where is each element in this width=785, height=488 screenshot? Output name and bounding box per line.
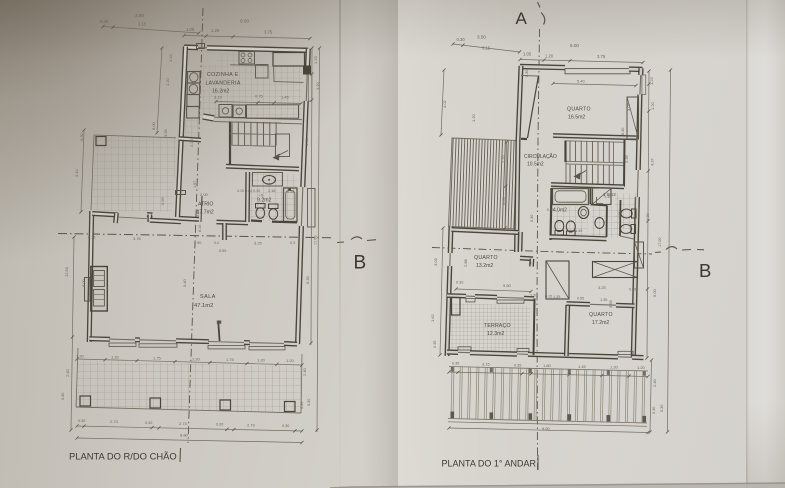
svg-text:0.30: 0.30 — [61, 393, 65, 400]
svg-text:0.30: 0.30 — [79, 132, 84, 141]
svg-text:2.73: 2.73 — [110, 419, 119, 424]
svg-text:3.25: 3.25 — [598, 285, 607, 290]
svg-text:0.35: 0.35 — [433, 341, 437, 348]
svg-text:1.20: 1.20 — [165, 77, 170, 86]
svg-text:0.30: 0.30 — [307, 399, 311, 406]
svg-text:1.20: 1.20 — [610, 365, 619, 370]
svg-text:1.45: 1.45 — [281, 95, 290, 100]
svg-text:17.00: 17.00 — [314, 235, 318, 245]
svg-text:0.30: 0.30 — [88, 236, 95, 240]
svg-text:0.15 0.84 0.15: 0.15 0.84 0.15 — [237, 189, 260, 193]
svg-text:1.90: 1.90 — [194, 241, 201, 245]
svg-text:1.23: 1.23 — [649, 76, 654, 85]
svg-text:1.35: 1.35 — [618, 212, 622, 219]
svg-text:17.00: 17.00 — [658, 237, 662, 247]
svg-text:3.75: 3.75 — [597, 54, 606, 59]
svg-text:3.75: 3.75 — [264, 30, 273, 35]
svg-text:0.30: 0.30 — [525, 70, 529, 77]
svg-text:0.30: 0.30 — [282, 424, 289, 428]
svg-text:1.5m2: 1.5m2 — [603, 192, 616, 197]
svg-text:0.2: 0.2 — [214, 241, 219, 245]
svg-text:47.1m2: 47.1m2 — [194, 303, 213, 309]
svg-text:3.14: 3.14 — [74, 168, 79, 177]
svg-text:SALA: SALA — [200, 294, 216, 300]
svg-text:0.30: 0.30 — [145, 421, 152, 425]
svg-text:6.30: 6.30 — [621, 128, 625, 135]
svg-text:6.00: 6.00 — [81, 278, 86, 287]
svg-text:1.45: 1.45 — [578, 364, 587, 369]
svg-text:16.5m2: 16.5m2 — [568, 115, 585, 121]
svg-text:B: B — [699, 260, 711, 281]
svg-text:16.2m2: 16.2m2 — [212, 89, 229, 95]
svg-text:0.30: 0.30 — [78, 419, 85, 423]
svg-text:1.20: 1.20 — [111, 355, 120, 360]
svg-text:1.20: 1.20 — [471, 113, 476, 122]
svg-text:3.80: 3.80 — [135, 13, 144, 18]
svg-text:6.00: 6.00 — [570, 43, 579, 48]
svg-text:0.3: 0.3 — [290, 241, 295, 245]
svg-text:13.2m2: 13.2m2 — [476, 263, 493, 269]
svg-text:2.39: 2.39 — [624, 154, 629, 163]
svg-text:0.30: 0.30 — [530, 215, 534, 222]
svg-text:COZINHA E: COZINHA E — [207, 72, 239, 78]
svg-text:2.40: 2.40 — [302, 367, 307, 376]
svg-text:4.37: 4.37 — [650, 157, 655, 166]
svg-text:1.80: 1.80 — [543, 363, 552, 368]
svg-text:9.50: 9.50 — [542, 426, 551, 431]
svg-text:1.25: 1.25 — [553, 295, 560, 299]
svg-text:1.20: 1.20 — [501, 154, 506, 163]
svg-text:2.00: 2.00 — [200, 192, 209, 197]
svg-text:ATRIO: ATRIO — [198, 202, 213, 208]
svg-text:2.73: 2.73 — [179, 421, 188, 426]
svg-text:0.30: 0.30 — [660, 405, 664, 412]
svg-text:12.50: 12.50 — [64, 266, 69, 277]
svg-text:1.62: 1.62 — [430, 313, 435, 322]
svg-text:1.20: 1.20 — [257, 358, 266, 363]
svg-text:0.55: 0.55 — [219, 249, 226, 253]
svg-text:1.20: 1.20 — [76, 354, 85, 359]
svg-text:2.40: 2.40 — [652, 378, 657, 387]
svg-text:1.35: 1.35 — [600, 298, 607, 302]
svg-text:2.20: 2.20 — [189, 138, 194, 147]
svg-text:1.20: 1.20 — [286, 358, 295, 363]
svg-text:0.99: 0.99 — [160, 196, 165, 205]
svg-text:1.20: 1.20 — [530, 294, 537, 298]
svg-text:0.30: 0.30 — [456, 281, 463, 285]
svg-text:3.19: 3.19 — [214, 95, 223, 100]
svg-text:5.40: 5.40 — [182, 278, 187, 287]
svg-text:QUARTO: QUARTO — [589, 312, 613, 318]
svg-text:2.16: 2.16 — [268, 189, 275, 193]
svg-text:+5: +5 — [259, 193, 264, 198]
svg-text:10.5m2: 10.5m2 — [527, 162, 544, 168]
svg-text:17.2m2: 17.2m2 — [592, 320, 609, 326]
svg-text:0.35: 0.35 — [514, 364, 521, 368]
svg-text:1.29: 1.29 — [211, 28, 220, 33]
svg-text:1.05: 1.05 — [186, 27, 195, 32]
svg-text:PLANTA DO 1° ANDAR: PLANTA DO 1° ANDAR — [442, 459, 537, 469]
svg-text:1.20: 1.20 — [645, 212, 650, 221]
svg-text:0.35: 0.35 — [452, 362, 459, 366]
svg-text:8.00: 8.00 — [151, 121, 156, 130]
svg-text:8.80: 8.80 — [180, 433, 189, 438]
svg-text:0.30: 0.30 — [300, 402, 304, 409]
svg-text:0.30: 0.30 — [100, 19, 109, 24]
svg-text:6.15: 6.15 — [198, 225, 202, 232]
svg-text:B: B — [354, 253, 367, 274]
svg-text:5.49: 5.49 — [575, 229, 582, 233]
svg-text:0.15: 0.15 — [545, 295, 552, 299]
svg-text:0.55: 0.55 — [577, 297, 584, 301]
svg-text:1.20: 1.20 — [315, 81, 320, 90]
svg-text:0.30: 0.30 — [629, 288, 636, 292]
svg-text:1.20: 1.20 — [650, 101, 655, 110]
svg-text:2.88: 2.88 — [463, 258, 468, 267]
svg-text:3.15: 3.15 — [138, 22, 147, 27]
svg-text:TERRAÇO: TERRAÇO — [484, 323, 511, 329]
svg-text:3.66: 3.66 — [501, 196, 506, 205]
svg-text:1.20: 1.20 — [192, 357, 201, 362]
svg-text:PLANTA DO R/DO CHÃO: PLANTA DO R/DO CHÃO — [69, 451, 177, 462]
svg-text:1.20: 1.20 — [545, 54, 554, 59]
svg-text:CIRCULAÇÃO: CIRCULAÇÃO — [524, 153, 557, 160]
svg-text:4.0m2: 4.0m2 — [553, 208, 567, 214]
svg-text:3.07: 3.07 — [626, 102, 631, 111]
svg-text:QUARTO: QUARTO — [474, 255, 498, 261]
svg-text:LAVANDERIA: LAVANDERIA — [206, 81, 241, 87]
svg-text:2.40: 2.40 — [65, 368, 70, 377]
svg-text:1.20: 1.20 — [637, 365, 646, 370]
svg-text:12.3m2: 12.3m2 — [487, 331, 504, 337]
svg-text:4.02: 4.02 — [442, 99, 447, 108]
svg-text:1.05: 1.05 — [523, 52, 532, 57]
svg-text:1.23: 1.23 — [313, 55, 318, 64]
svg-text:1.23: 1.23 — [168, 53, 173, 62]
svg-text:3.50: 3.50 — [477, 35, 486, 40]
svg-text:0.30: 0.30 — [652, 407, 656, 414]
svg-text:A: A — [516, 9, 528, 28]
svg-text:17.7m2: 17.7m2 — [197, 210, 214, 216]
svg-text:0.75: 0.75 — [255, 94, 264, 99]
svg-text:6.00: 6.00 — [240, 19, 249, 24]
svg-text:3.76: 3.76 — [133, 236, 142, 241]
svg-text:5.40: 5.40 — [577, 79, 586, 84]
svg-text:3.56: 3.56 — [608, 299, 613, 308]
svg-text:1.75: 1.75 — [226, 357, 235, 362]
svg-text:1.57: 1.57 — [193, 181, 197, 188]
svg-text:QUARTO: QUARTO — [567, 107, 591, 113]
svg-text:5.50: 5.50 — [503, 283, 512, 288]
svg-text:3.58: 3.58 — [163, 128, 168, 137]
svg-text:2.73: 2.73 — [247, 423, 256, 428]
svg-text:0.30: 0.30 — [287, 190, 294, 194]
svg-text:3.15: 3.15 — [482, 362, 491, 367]
svg-text:6.00: 6.00 — [652, 288, 657, 297]
svg-text:6.39: 6.39 — [305, 275, 310, 284]
svg-text:4.03: 4.03 — [433, 257, 438, 266]
svg-text:0.30: 0.30 — [457, 37, 466, 42]
svg-text:3.98: 3.98 — [304, 137, 309, 146]
svg-text:3.25: 3.25 — [254, 241, 263, 246]
svg-text:1.75: 1.75 — [153, 356, 162, 361]
svg-text:0.30: 0.30 — [216, 423, 223, 427]
svg-text:9.2m2: 9.2m2 — [257, 198, 272, 204]
